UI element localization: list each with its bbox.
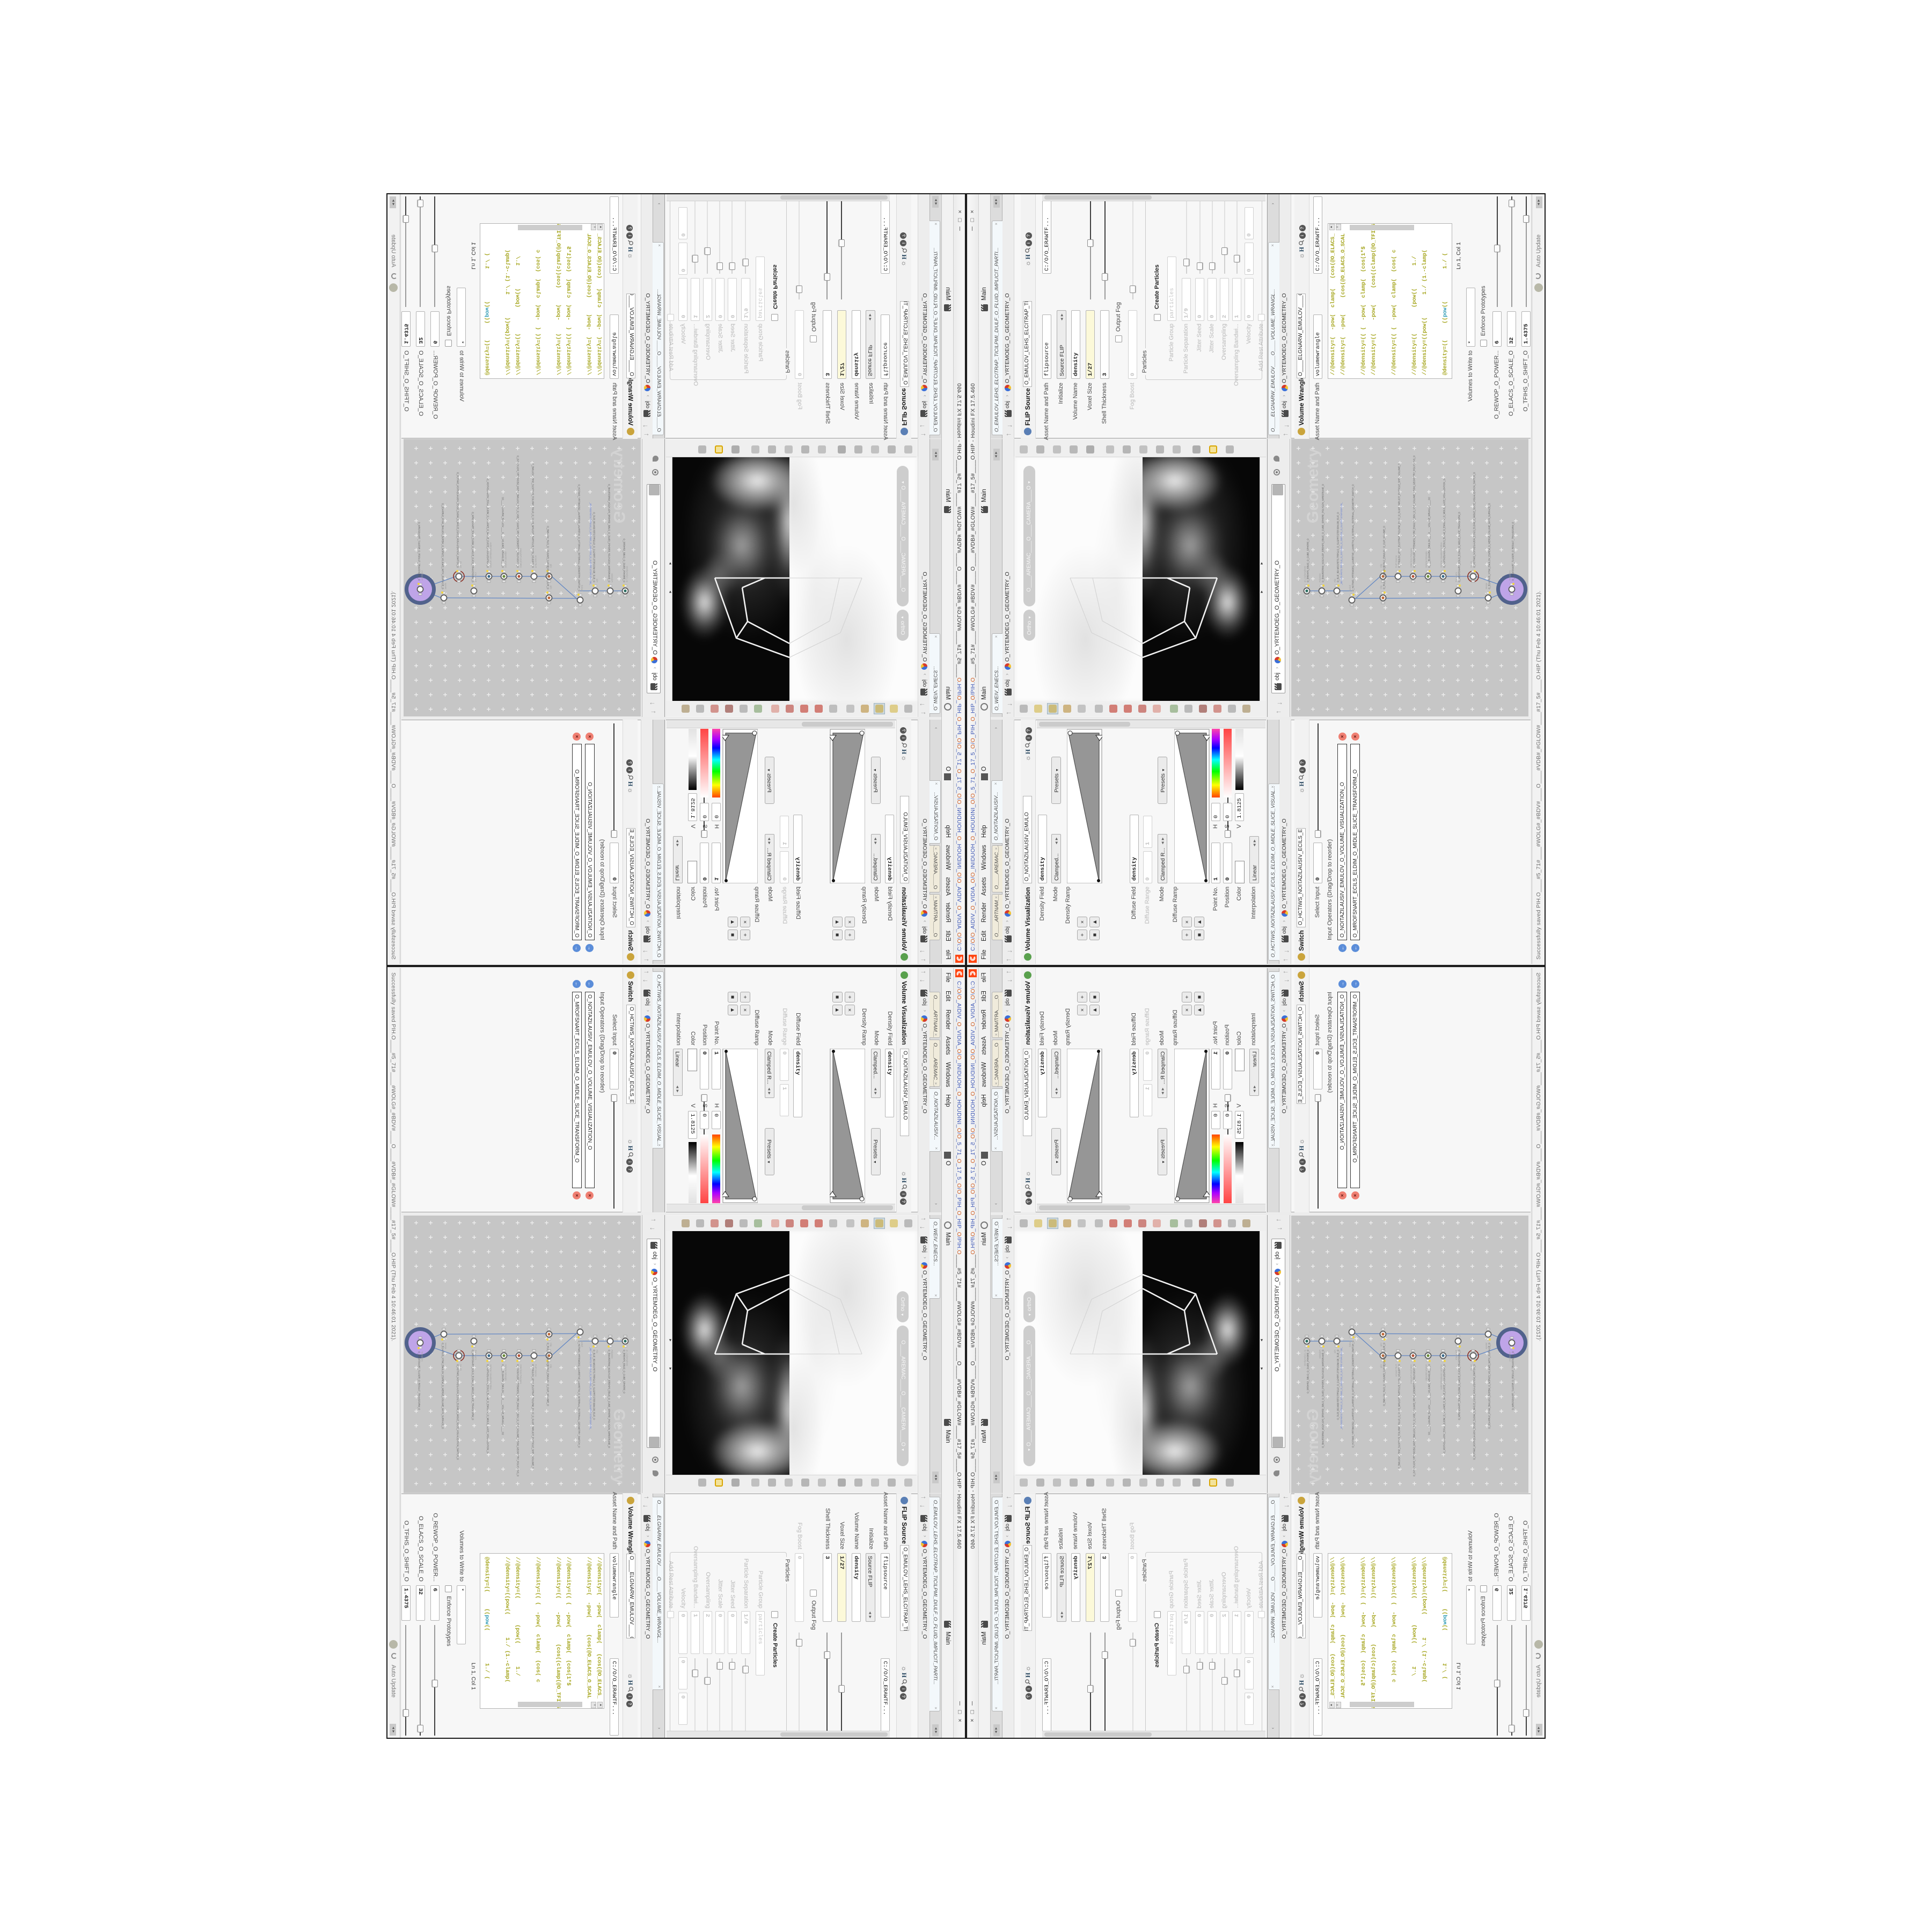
svg-text:O_HCTIWS_YRTEMOEG_LANRETXE_LAN: O_HCTIWS_YRTEMOEG_LANRETXE_LANRETNI_O_IN… [578,484,581,591]
svg-text:O_MROFSNART_TLUSER_O_RESULT_TR: O_MROFSNART_TLUSER_O_RESULT_TRANSFORM_O [1512,1351,1514,1410]
svg-text:Switch: Switch [581,584,583,591]
svg-text:Transform: Transform [1509,1351,1511,1362]
svg-text:Switch: Switch [1470,1364,1473,1371]
svg-text:Transform: Transform [474,1350,477,1360]
svg-text:O_HCTIWS_YRTEMOEG_LANRETXE_LAN: O_HCTIWS_YRTEMOEG_LANRETXE_LANRETNI_O_IN… [578,1341,581,1448]
svg-text:O_PILC_EMULOV_O_CLIP_VOLUME_O: O_PILC_EMULOV_O_CLIP_VOLUME_O [547,526,550,568]
svg-text:Transform: Transform [421,570,423,581]
svg-text:O_SNOGYLOP_YRTEMOEG_MORF_EMULO: O_SNOGYLOP_YRTEMOEG_MORF_EMULOV_BDV_D_VD… [517,1364,519,1477]
svg-text:an_CubeSphere: an_CubeSphere [626,566,628,582]
svg-text:Merge: Merge [444,1343,447,1350]
svg-text:an_CubeSphere: an_CubeSphere [1304,566,1306,582]
svg-text:O_EREHPS_EBUC_O_CUBE_SPHERE_O: O_EREHPS_EBUC_O_CUBE_SPHERE_O [623,538,626,582]
svg-text:O_PILC_2_EMULOV_O: O_PILC_2_EMULOV_O [547,565,550,589]
svg-text:O_EMULOV_LEHS_ELCITRAP_TICILPM: O_EMULOV_LEHS_ELCITRAP_TICILPMI_DIULF_D_… [532,463,535,568]
svg-text:O_ELIF_BD.M03.PETS.TRPGLS_O_SL: O_ELIF_BD.M03.PETS.TRPGLS_O_SLGPRT.STEP.… [1337,512,1340,582]
svg-text:Volume VisualizationSlice: Volume VisualizationSlice [489,1364,492,1390]
svg-text:Volume Wrangle: Volume Wrangle [1425,551,1428,568]
svg-text:Volume VisualizationSlice: Volume VisualizationSlice [1440,1364,1443,1390]
svg-text:VDB from Polygons: VDB from Polygons [519,548,522,568]
svg-text:O_ECAFRUS_HTIW_EMULOV_EGREM_O_: O_ECAFRUS_HTIW_EMULOV_EGREM_O_MERGE_VOLU… [1488,1343,1491,1429]
svg-text:Merge: Merge [444,582,447,589]
svg-text:O_SNOGYLOP_YRTEMOEG_MORF_EMULO: O_SNOGYLOP_YRTEMOEG_MORF_EMULOV_BDV_D_VD… [1413,455,1416,568]
svg-text:O_EMARFERIW_NOGYLOP_EREHPS_EBU: O_EMARFERIW_NOGYLOP_EREHPS_EBUC_O_CUBE_S… [1322,484,1324,582]
svg-text:O_ECAFRUS_HTIW_EMULOV_EGREM_O_: O_ECAFRUS_HTIW_EMULOV_EGREM_O_MERGE_VOLU… [442,1343,444,1429]
svg-text:FLIP Source: FLIP Source [1395,1364,1397,1377]
svg-text:Clip: Clip [550,585,552,589]
svg-text:O_MROFSNART_ECILS_ELDIM_O_MIDL: O_MROFSNART_ECILS_ELDIM_O_MIDLE_SLICE_TR… [472,511,474,582]
svg-text:VDB from Polygons: VDB from Polygons [1410,548,1413,568]
svg-text:Clip: Clip [1380,1343,1382,1347]
svg-text:O_ECAFRUS_HTIW_EMULOV_EGREM_O_: O_ECAFRUS_HTIW_EMULOV_EGREM_O_MERGE_VOLU… [442,503,444,589]
svg-text:O_HCTIWS_NOITAZILAUSIV_ECILS_E: O_HCTIWS_NOITAZILAUSIV_ECILS_ELDIM_O_MID… [1473,472,1476,568]
svg-text:Volume VisualizationSlice: Volume VisualizationSlice [1440,542,1443,568]
svg-text:FLIP Source: FLIP Source [535,555,537,568]
svg-text:PolyWire: PolyWire [611,573,613,582]
svg-text:VDB from Polygons: VDB from Polygons [519,1364,522,1384]
svg-text:Clip: Clip [1380,585,1382,589]
svg-text:O_PILC_2_EMULOV_O: O_PILC_2_EMULOV_O [1383,565,1386,589]
svg-text:O_PILC_EMULOV_O_CLIP_VOLUME_O: O_PILC_EMULOV_O_CLIP_VOLUME_O [1383,526,1386,568]
svg-text:O_ECAFRUS_HTIW_EMULOV_EGREM_O_: O_ECAFRUS_HTIW_EMULOV_EGREM_O_MERGE_VOLU… [1488,503,1491,589]
svg-text:O_MROFSNART_ECILS_ELDIM_O_MIDL: O_MROFSNART_ECILS_ELDIM_O_MIDLE_SLICE_TR… [472,1350,474,1421]
svg-text:Switch: Switch [1349,584,1351,591]
svg-text:PolyWire: PolyWire [611,1350,613,1359]
svg-text:O_HCTIWS_NOITAZILAUSIV_ECILS_E: O_HCTIWS_NOITAZILAUSIV_ECILS_ELDIM_O_MID… [457,1364,459,1460]
svg-text:O_EMARFERIW_NOGYLOP_EREHPS_EBU: O_EMARFERIW_NOGYLOP_EREHPS_EBUC_O_CUBE_S… [1322,1350,1324,1448]
svg-text:FLIP Source: FLIP Source [1395,555,1397,568]
svg-text:Clip: Clip [550,1343,552,1347]
svg-text:O_NOITAZILAUSIV_ECILS_ELDIM_O_: O_NOITAZILAUSIV_ECILS_ELDIM_O_EMULOV_O_M… [1443,1364,1446,1454]
svg-text:Transform: Transform [1455,1350,1458,1360]
svg-text:O_MROFSNART_ECILS_ELDIM_O_MIDL: O_MROFSNART_ECILS_ELDIM_O_MIDLE_SLICE_TR… [1458,511,1461,582]
svg-text:Clip: Clip [1380,563,1382,568]
svg-text:O____ELGNARW_EMULOV____O____VO: O____ELGNARW_EMULOV____O____VOLUME_WRANG… [502,497,504,568]
svg-text:Clip: Clip [1380,1364,1382,1368]
svg-text:O_ELIF_BD.M03.PETS.TRPGLS_O_SL: O_ELIF_BD.M03.PETS.TRPGLS_O_SLGPRT.STEP.… [593,1350,596,1420]
svg-text:Transform: Transform [421,1351,423,1362]
svg-text:File: File [1334,579,1336,582]
svg-text:O_EREHPS_EBUC_O_CUBE_SPHERE_O: O_EREHPS_EBUC_O_CUBE_SPHERE_O [1307,1350,1309,1394]
svg-text:VDB from Polygons: VDB from Polygons [1410,1364,1413,1384]
svg-text:Switch: Switch [1470,561,1473,568]
svg-text:_BD.M03.PETS.TRPGLS_O_SOUNEG_O: _BD.M03.PETS.TRPGLS_O_SOUNEG_O_GENUSS_O_… [1340,1346,1343,1430]
svg-text:O_NOITAZILAUSIV_ECILS_ELDIM_O_: O_NOITAZILAUSIV_ECILS_ELDIM_O_EMULOV_O_M… [487,478,489,568]
svg-text:O_PILC_2_EMULOV_O: O_PILC_2_EMULOV_O [1383,1343,1386,1367]
svg-text:O_EMULOV_LEHS_ELCITRAP_TICILPM: O_EMULOV_LEHS_ELCITRAP_TICILPMI_DIULF_D_… [1398,1364,1401,1469]
svg-text:O_EREHPS_EBUC_O_CUBE_SPHERE_O: O_EREHPS_EBUC_O_CUBE_SPHERE_O [1307,538,1309,582]
svg-text:O_MROFSNART_TLUSER_O_RESULT_TR: O_MROFSNART_TLUSER_O_RESULT_TRANSFORM_O [1512,522,1514,581]
svg-text:O_PILC_2_EMULOV_O: O_PILC_2_EMULOV_O [547,1343,550,1367]
svg-text:Switch: Switch [581,1341,583,1348]
svg-text:Volume VisualizationSlice: Volume VisualizationSlice [489,542,492,568]
svg-text:O_SNOGYLOP_YRTEMOEG_MORF_EMULO: O_SNOGYLOP_YRTEMOEG_MORF_EMULOV_BDV_D_VD… [1413,1364,1416,1477]
svg-text:O_MROFSNART_ECILS_ELDIM_O_MIDL: O_MROFSNART_ECILS_ELDIM_O_MIDLE_SLICE_TR… [1458,1350,1461,1421]
svg-text:O_MROFSNART_TLUSER_O_RESULT_TR: O_MROFSNART_TLUSER_O_RESULT_TRANSFORM_O [418,522,421,581]
svg-text:Switch: Switch [459,561,462,568]
svg-text:O_EREHPS_EBUC_O_CUBE_SPHERE_O: O_EREHPS_EBUC_O_CUBE_SPHERE_O [623,1350,626,1394]
svg-text:O_MROFSNART_TLUSER_O_RESULT_TR: O_MROFSNART_TLUSER_O_RESULT_TRANSFORM_O [418,1351,421,1410]
svg-text:O_HCTIWS_NOITAZILAUSIV_ECILS_E: O_HCTIWS_NOITAZILAUSIV_ECILS_ELDIM_O_MID… [1473,1364,1476,1460]
svg-text:Switch: Switch [459,1364,462,1371]
svg-text:FLIP Source: FLIP Source [535,1364,537,1377]
svg-text:O____ELGNARW_EMULOV____O____VO: O____ELGNARW_EMULOV____O____VOLUME_WRANG… [1428,497,1431,568]
svg-text:Merge: Merge [1485,1343,1488,1350]
svg-text:Transform: Transform [1509,570,1511,581]
svg-text:O_EMARFERIW_NOGYLOP_EREHPS_EBU: O_EMARFERIW_NOGYLOP_EREHPS_EBUC_O_CUBE_S… [608,1350,611,1448]
svg-text:O_PILC_EMULOV_O_CLIP_VOLUME_O: O_PILC_EMULOV_O_CLIP_VOLUME_O [1383,1364,1386,1406]
svg-text:Transform: Transform [1455,572,1458,582]
svg-text:_BD.M03.PETS.TRPGLS_O_SOUNEG_O: _BD.M03.PETS.TRPGLS_O_SOUNEG_O_GENUSS_O_… [589,502,592,586]
svg-text:PolyWire: PolyWire [1319,1350,1321,1359]
svg-text:File: File [596,579,598,582]
svg-text:O____ELGNARW_EMULOV____O____VO: O____ELGNARW_EMULOV____O____VOLUME_WRANG… [1428,1364,1431,1435]
svg-text:Merge: Merge [1485,582,1488,589]
svg-text:O_EMARFERIW_NOGYLOP_EREHPS_EBU: O_EMARFERIW_NOGYLOP_EREHPS_EBUC_O_CUBE_S… [608,484,611,582]
svg-text:O_ELIF_BD.M03.PETS.TRPGLS_O_SL: O_ELIF_BD.M03.PETS.TRPGLS_O_SLGPRT.STEP.… [1337,1350,1340,1420]
svg-text:O____ELGNARW_EMULOV____O____VO: O____ELGNARW_EMULOV____O____VOLUME_WRANG… [502,1364,504,1435]
svg-text:an_CubeSphere: an_CubeSphere [626,1350,628,1366]
svg-text:File: File [1334,1350,1336,1353]
svg-text:O_HCTIWS_YRTEMOEG_LANRETXE_LAN: O_HCTIWS_YRTEMOEG_LANRETXE_LANRETNI_O_IN… [1352,1341,1355,1448]
svg-text:O_SNOGYLOP_YRTEMOEG_MORF_EMULO: O_SNOGYLOP_YRTEMOEG_MORF_EMULOV_BDV_D_VD… [517,455,519,568]
svg-text:Volume Wrangle: Volume Wrangle [1425,1364,1428,1381]
svg-text:File: File [596,1350,598,1353]
svg-text:Clip: Clip [550,1364,552,1368]
svg-text:PolyWire: PolyWire [1319,573,1321,582]
svg-text:O_NOITAZILAUSIV_ECILS_ELDIM_O_: O_NOITAZILAUSIV_ECILS_ELDIM_O_EMULOV_O_M… [1443,478,1446,568]
svg-text:Volume Wrangle: Volume Wrangle [504,551,507,568]
svg-text:Clip: Clip [550,563,552,568]
svg-text:O_EMULOV_LEHS_ELCITRAP_TICILPM: O_EMULOV_LEHS_ELCITRAP_TICILPMI_DIULF_D_… [532,1364,535,1469]
svg-text:O_ELIF_BD.M03.PETS.TRPGLS_O_SL: O_ELIF_BD.M03.PETS.TRPGLS_O_SLGPRT.STEP.… [593,512,596,582]
svg-text:Volume Wrangle: Volume Wrangle [504,1364,507,1381]
svg-text:an_CubeSphere: an_CubeSphere [1304,1350,1306,1366]
svg-text:Transform: Transform [474,572,477,582]
svg-text:Switch: Switch [1349,1341,1351,1348]
svg-text:O_HCTIWS_NOITAZILAUSIV_ECILS_E: O_HCTIWS_NOITAZILAUSIV_ECILS_ELDIM_O_MID… [457,472,459,568]
svg-text:_BD.M03.PETS.TRPGLS_O_SOUNEG_O: _BD.M03.PETS.TRPGLS_O_SOUNEG_O_GENUSS_O_… [1340,502,1343,586]
svg-text:O_EMULOV_LEHS_ELCITRAP_TICILPM: O_EMULOV_LEHS_ELCITRAP_TICILPMI_DIULF_D_… [1398,463,1401,568]
svg-text:O_HCTIWS_YRTEMOEG_LANRETXE_LAN: O_HCTIWS_YRTEMOEG_LANRETXE_LANRETNI_O_IN… [1352,484,1355,591]
svg-text:_BD.M03.PETS.TRPGLS_O_SOUNEG_O: _BD.M03.PETS.TRPGLS_O_SOUNEG_O_GENUSS_O_… [589,1346,592,1430]
svg-text:O_PILC_EMULOV_O_CLIP_VOLUME_O: O_PILC_EMULOV_O_CLIP_VOLUME_O [547,1364,550,1406]
svg-text:O_NOITAZILAUSIV_ECILS_ELDIM_O_: O_NOITAZILAUSIV_ECILS_ELDIM_O_EMULOV_O_M… [487,1364,489,1454]
